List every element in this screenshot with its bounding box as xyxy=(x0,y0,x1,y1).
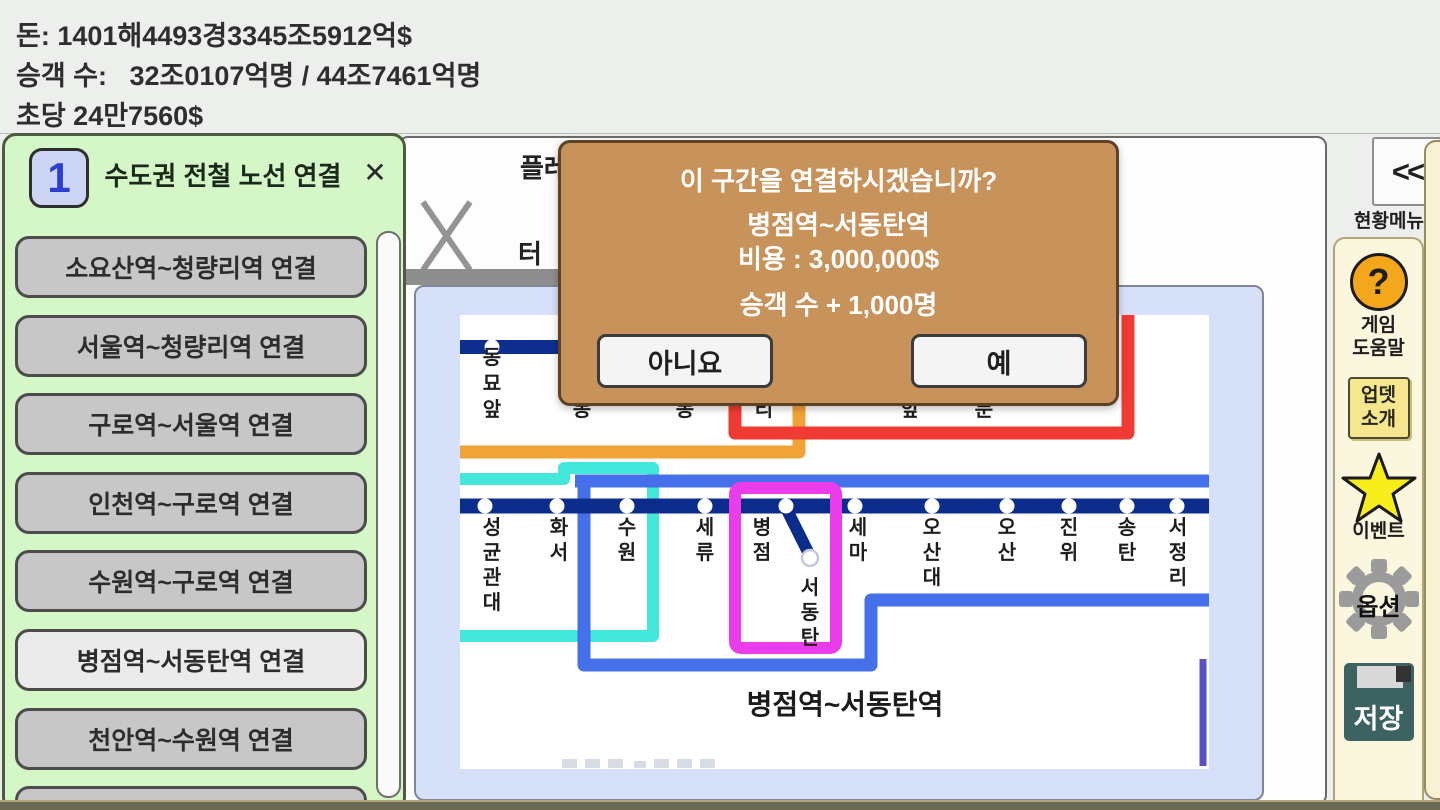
bottom-edge-bar xyxy=(0,800,1440,810)
branch-station-dot xyxy=(802,550,818,566)
line-connect-button[interactable]: 소요산역~청량리역 연결 xyxy=(15,236,367,298)
options-button[interactable]: 옵션 xyxy=(1337,557,1421,641)
panel-title: 수도권 전철 노선 연결 xyxy=(93,156,353,193)
line-connect-button[interactable]: 병점역~서동탄역 연결 xyxy=(15,629,367,691)
dialog-question: 이 구간을 연결하시겠습니까? xyxy=(561,161,1116,198)
station-dot xyxy=(1170,499,1185,514)
hud-bar: 돈: 1401해4493경3345조5912억$ 승객 수: 32조0107억명… xyxy=(0,0,1440,134)
help-icon[interactable]: ? xyxy=(1350,253,1408,311)
no-button[interactable]: 아니요 xyxy=(597,334,773,388)
connect-confirm-dialog: 이 구간을 연결하시겠습니까? 병점역~서동탄역 비용 : 3,000,000$… xyxy=(558,140,1119,406)
sidebar-icon-panel: ? 게임 도움말 업뎃소개 이벤트 옵션 저장 xyxy=(1333,237,1424,810)
tab-label-fragment-bottom[interactable]: 터 xyxy=(518,234,542,271)
close-x-icon[interactable] xyxy=(417,196,477,276)
line-connect-button[interactable]: 천안역~수원역 연결 xyxy=(15,708,367,770)
station-dot xyxy=(1062,499,1077,514)
options-label: 옵션 xyxy=(1337,587,1421,622)
station-label: 병점 xyxy=(753,516,771,564)
game-screen: 돈: 1401해4493경3345조5912억$ 승객 수: 32조0107억명… xyxy=(0,0,1440,810)
floppy-shutter xyxy=(1396,666,1411,682)
line-connection-panel: 1 수도권 전철 노선 연결 ✕ 소요산역~청량리역 연결서울역~청량리역 연결… xyxy=(2,133,406,808)
station-label: 성균관대 xyxy=(483,516,502,614)
line-connect-button[interactable]: 수원역~구로역 연결 xyxy=(15,550,367,612)
station-label: 동묘앞 xyxy=(483,347,502,421)
branch-station-label: 서동탄 xyxy=(801,576,820,649)
station-dot xyxy=(1120,499,1135,514)
station-dot xyxy=(478,499,493,514)
update-label-line2: 소개 xyxy=(1361,408,1396,432)
update-label-line1: 업뎃 xyxy=(1361,384,1396,408)
station-dot xyxy=(779,499,794,514)
update-notes-icon[interactable]: 업뎃소개 xyxy=(1348,377,1410,439)
station-dot xyxy=(620,499,635,514)
map-caption: 병점역~서동탄역 xyxy=(747,689,944,720)
station-label: 송탄 xyxy=(1118,516,1137,564)
station-label: 진위 xyxy=(1060,516,1078,564)
station-label: 오산 xyxy=(998,517,1017,564)
station-dot xyxy=(848,499,863,514)
star-icon xyxy=(1340,451,1418,524)
yes-button[interactable]: 예 xyxy=(911,334,1087,388)
station-dot xyxy=(698,499,713,514)
line-connect-button[interactable]: 서울역~청량리역 연결 xyxy=(15,315,367,377)
money-text: 돈: 1401해4493경3345조5912억$ xyxy=(16,14,412,53)
line-connect-button[interactable]: 인천역~구로역 연결 xyxy=(15,472,367,534)
station-label: 서정리 xyxy=(1169,516,1187,589)
line-connect-button[interactable]: 구로역~서울역 연결 xyxy=(15,393,367,455)
station-dot xyxy=(925,499,940,514)
dialog-passenger-bonus: 승객 수 + 1,000명 xyxy=(561,285,1116,322)
panel-number-badge: 1 xyxy=(29,148,89,208)
station-label: 오산대 xyxy=(923,517,942,589)
event-button[interactable]: 이벤트 xyxy=(1340,451,1418,543)
passenger-count-text: 승객 수: 32조0107억명 / 44조7461억명 xyxy=(16,54,481,93)
station-label: 화서 xyxy=(550,516,569,564)
dialog-cost: 비용 : 3,000,000$ xyxy=(561,239,1116,276)
station-label: 세류 xyxy=(696,516,714,564)
help-label[interactable]: 게임 도움말 xyxy=(1352,314,1404,360)
dialog-section-name: 병점역~서동탄역 xyxy=(561,205,1116,242)
station-label: 세마 xyxy=(849,516,868,564)
event-label: 이벤트 xyxy=(1352,516,1404,543)
faint-caption-smudge xyxy=(562,759,715,768)
station-label: 수원 xyxy=(618,516,636,564)
panel-close-button[interactable]: ✕ xyxy=(357,154,393,190)
panel-scrollbar[interactable] xyxy=(376,231,401,798)
station-dot xyxy=(550,499,565,514)
save-label: 저장 xyxy=(1344,697,1414,736)
income-per-second-text: 초당 24만7560$ xyxy=(16,94,203,133)
station-dot xyxy=(1000,499,1015,514)
help-label-line1: 게임 xyxy=(1361,315,1396,336)
help-label-line2: 도움말 xyxy=(1352,338,1404,359)
save-button[interactable]: 저장 xyxy=(1344,663,1414,741)
branch-line xyxy=(786,508,810,556)
collapsed-status-panel[interactable] xyxy=(1424,140,1440,800)
